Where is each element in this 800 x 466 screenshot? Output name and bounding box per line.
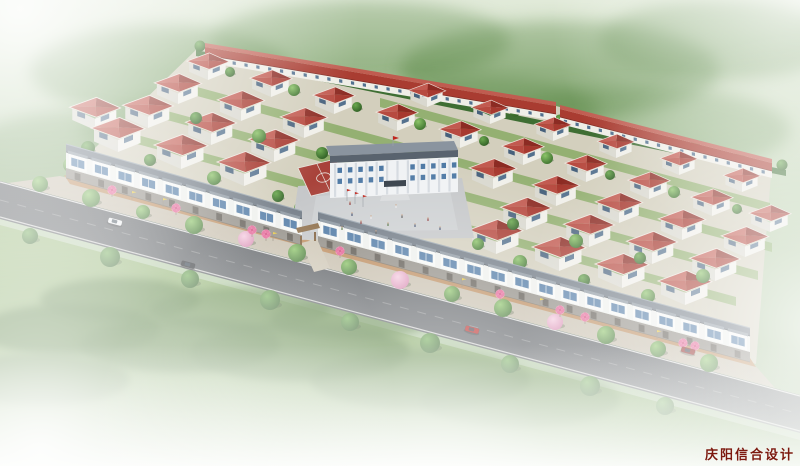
fog-overlay	[0, 0, 800, 466]
rendering-canvas: 庆阳信合设计	[0, 0, 800, 466]
watermark-text: 庆阳信合设计	[705, 444, 795, 463]
aerial-site-rendering	[0, 0, 800, 466]
fog-layer	[0, 0, 800, 466]
